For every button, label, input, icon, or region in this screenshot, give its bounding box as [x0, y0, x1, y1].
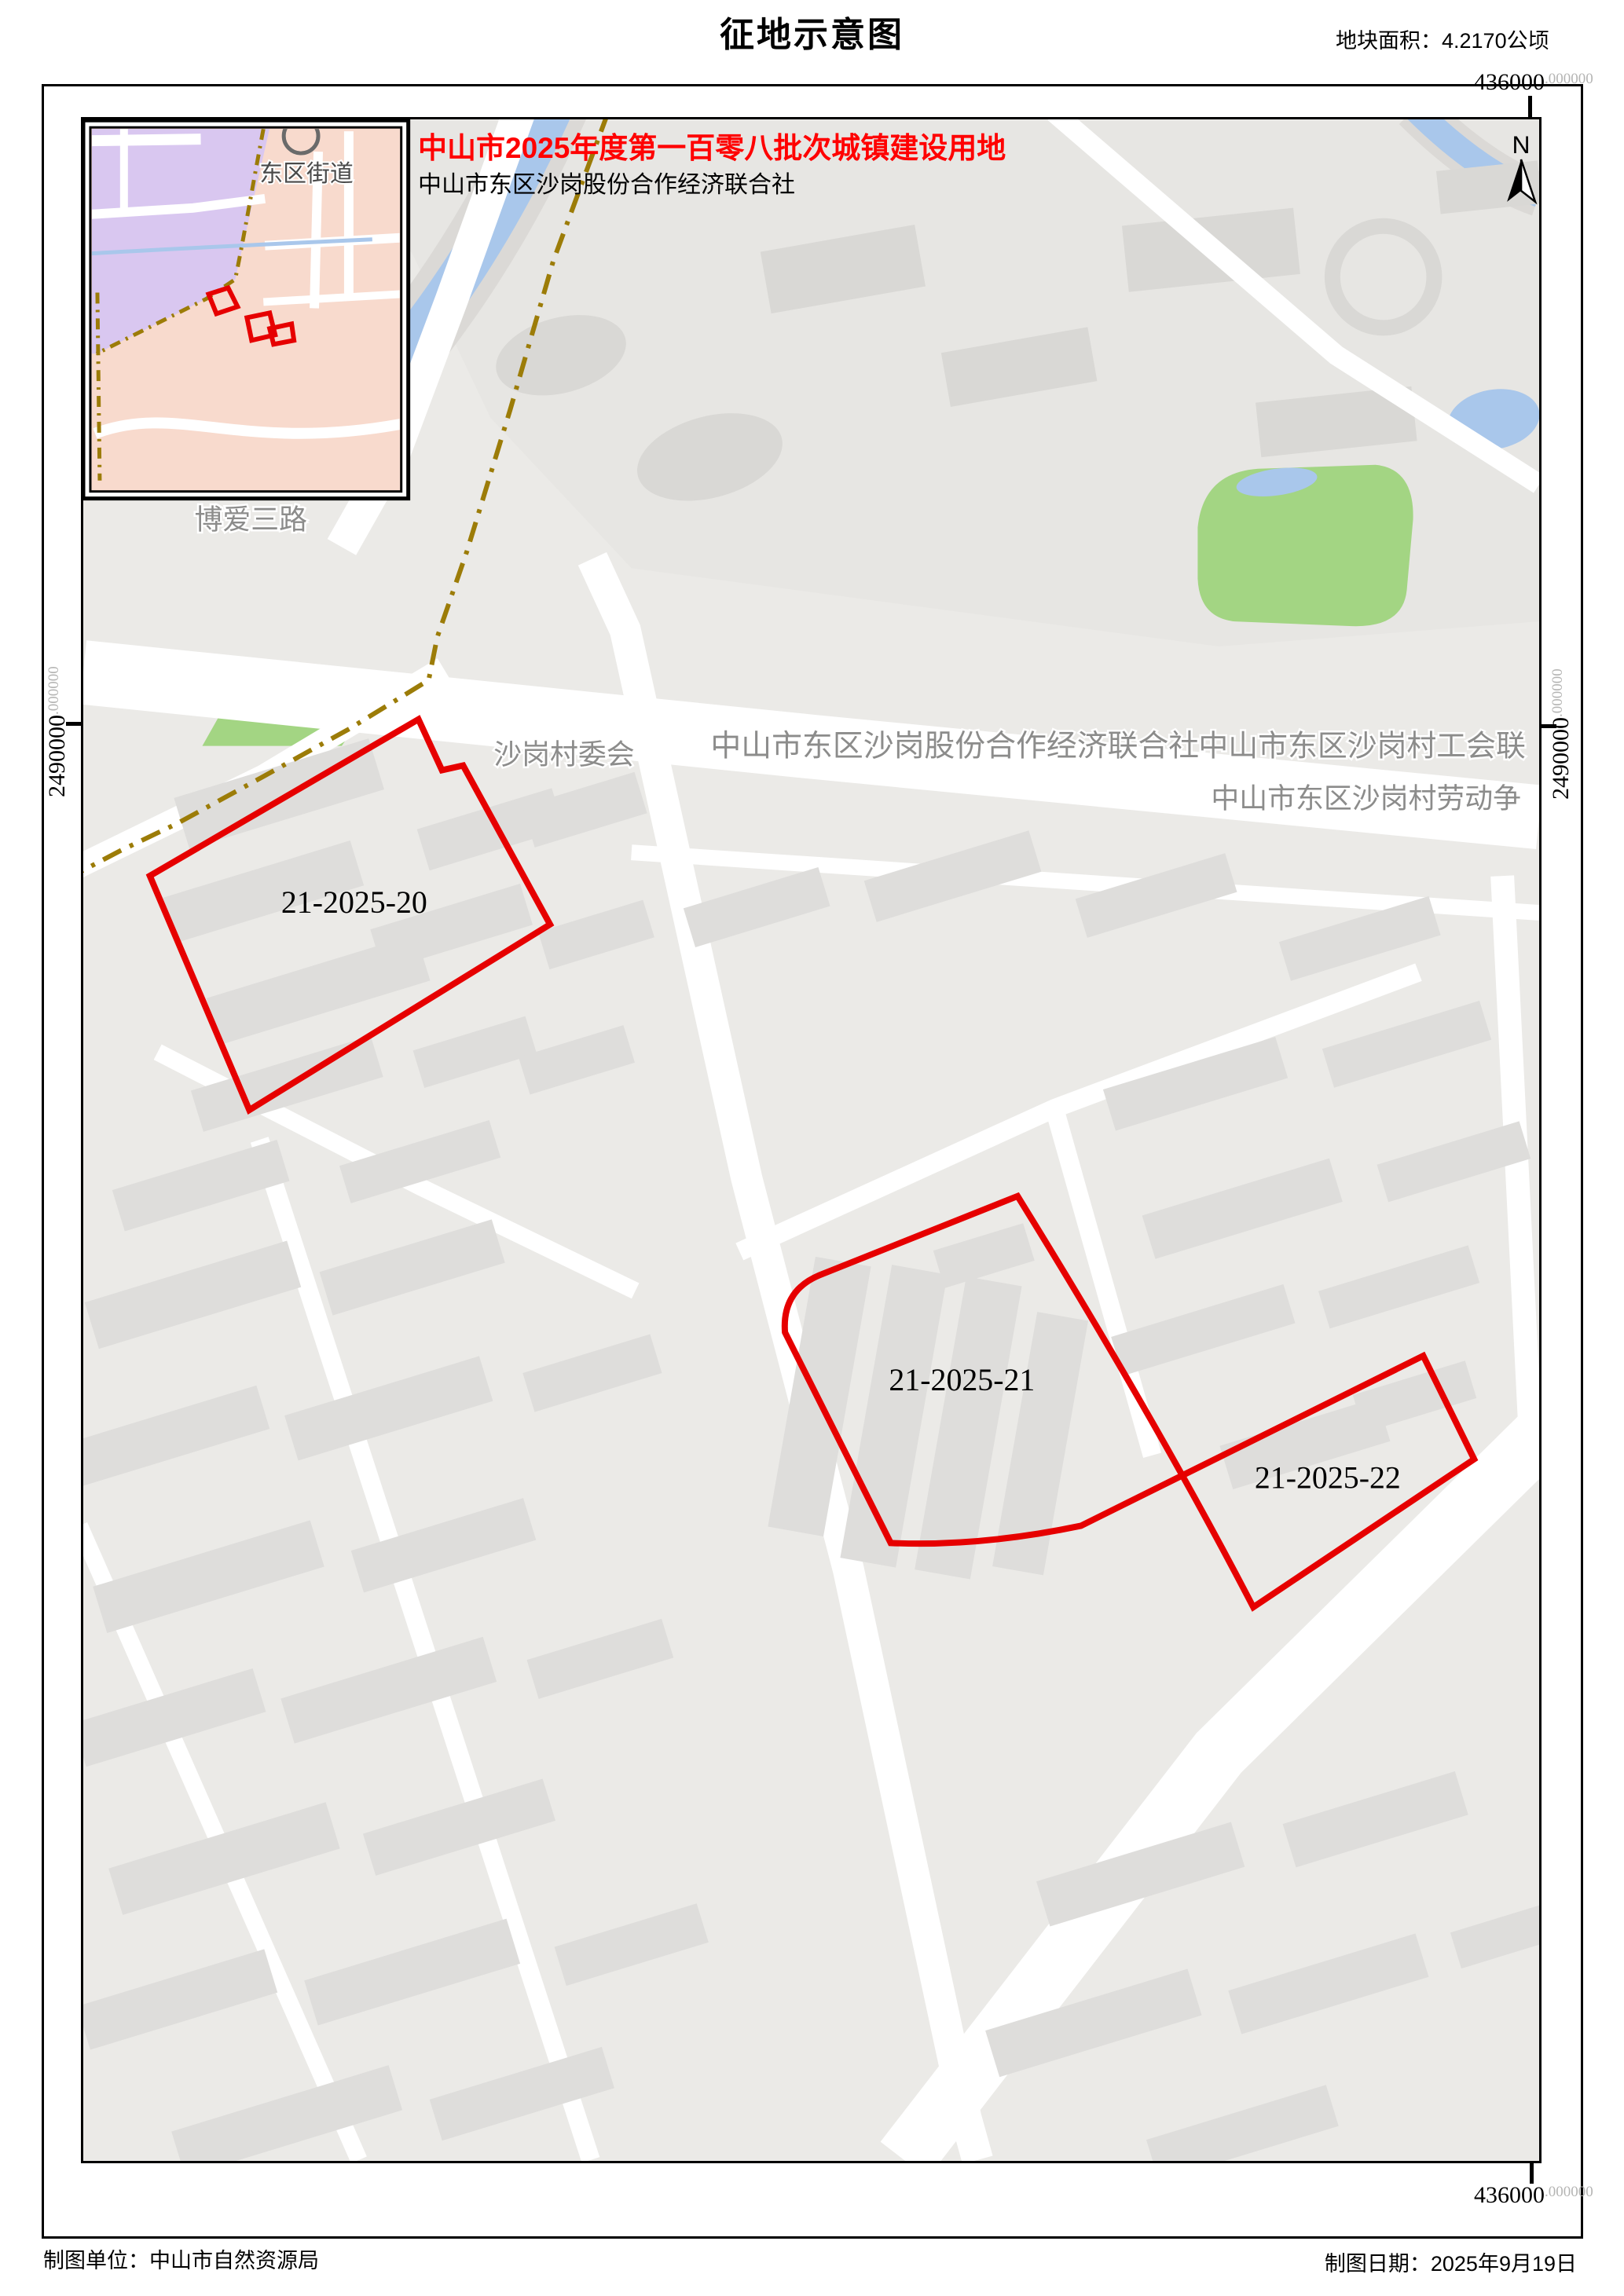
footer-mapping-date: 制图日期：2025年9月19日	[1100, 2247, 1577, 2277]
coord-left-main: 2490000	[44, 715, 70, 797]
coord-right-suffix: .000000	[1549, 668, 1566, 717]
plot-area-label: 地块面积：4.2170公顷	[1336, 24, 1581, 54]
coord-bottom-main: 436000	[1474, 2182, 1545, 2208]
park-east	[1197, 465, 1413, 626]
coord-right-main: 2490000	[1548, 717, 1574, 800]
coord-top-suffix: .000000	[1545, 71, 1593, 87]
label-labor-dispute: 中山市东区沙岗村劳动争	[1211, 782, 1521, 814]
inset-subdistrict-label: 东区街道	[259, 161, 354, 187]
map-canvas: 沙岗村委会 中山市东区沙岗股份合作经济联合社 中山市东区沙岗村工会联 中山市东区…	[81, 117, 1542, 2163]
coord-label-top: 436000.000000	[1474, 69, 1593, 96]
label-economic-coop: 中山市东区沙岗股份合作经济联合社	[710, 730, 1199, 764]
tick-bottom	[1530, 2163, 1534, 2184]
coord-label-right: 2490000.000000	[1548, 668, 1575, 800]
buildings-layer	[83, 738, 1539, 2161]
coord-bottom-suffix: .000000	[1545, 2184, 1593, 2200]
batch-title: 中山市2025年度第一百零八批次城镇建设用地	[418, 124, 1006, 167]
coord-left-suffix: .000000	[46, 666, 62, 715]
label-workers-union: 中山市东区沙岗村工会联	[1198, 731, 1525, 764]
map-svg: 沙岗村委会 中山市东区沙岗股份合作经济联合社 中山市东区沙岗村工会联 中山市东区…	[83, 119, 1539, 2161]
label-road-boai: 博爱三路	[195, 504, 308, 536]
footer-mapping-unit: 制图单位：中山市自然资源局	[43, 2243, 319, 2274]
inset-map: 东区街道	[83, 119, 409, 499]
parcel-21-label: 21-2025-21	[889, 1362, 1035, 1397]
label-village-committee: 沙岗村委会	[493, 739, 634, 771]
parcel-22-label: 21-2025-22	[1255, 1460, 1401, 1496]
coord-label-left: 2490000.000000	[44, 666, 71, 797]
coord-top-main: 436000	[1474, 69, 1545, 95]
applicant-name: 中山市东区沙岗股份合作经济联合社	[418, 165, 795, 200]
coord-label-bottom: 436000.000000	[1474, 2182, 1593, 2209]
parcel-20-label: 21-2025-20	[281, 884, 427, 920]
land-acquisition-map-page: 征地示意图 地块面积：4.2170公顷 436000.000000 436000…	[0, 0, 1624, 2296]
north-letter: N	[1512, 130, 1531, 159]
tick-top	[1528, 96, 1532, 117]
